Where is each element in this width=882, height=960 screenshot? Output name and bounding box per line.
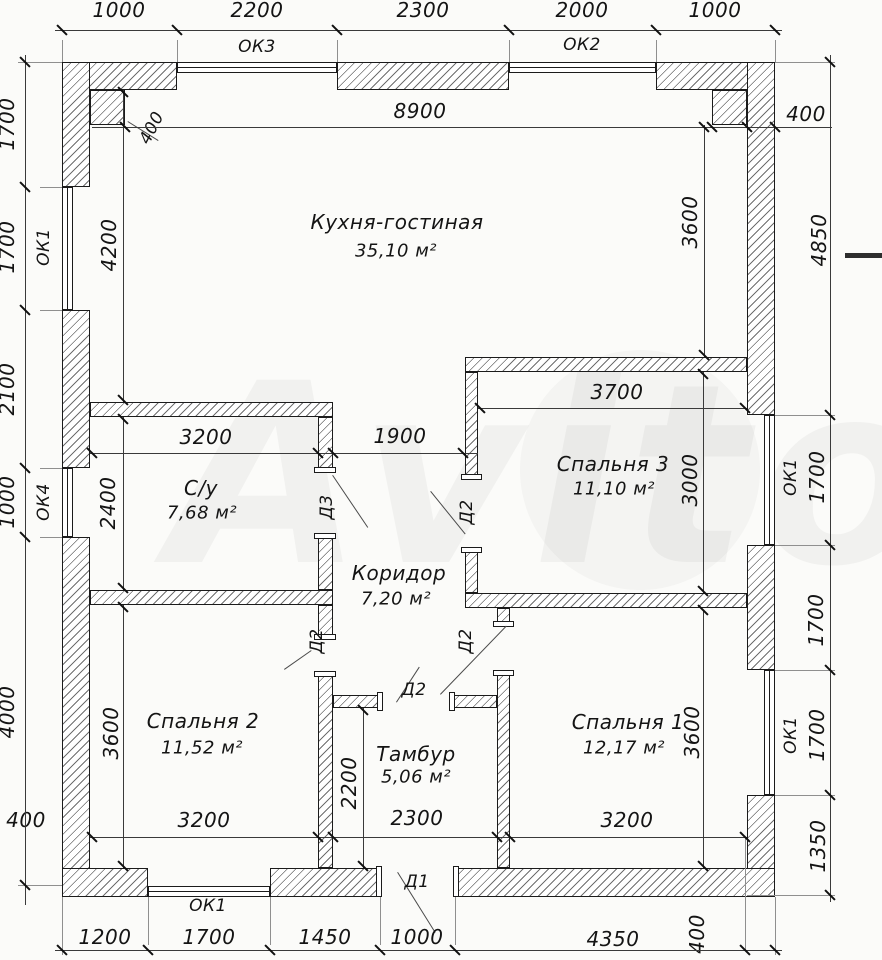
watermark-artifact [845, 253, 882, 258]
dim-label-right-1: 400 [786, 102, 826, 126]
extension-line [40, 187, 62, 188]
extension-line [177, 40, 178, 62]
extension-line [775, 795, 835, 796]
extension-line [270, 897, 271, 945]
door-jamb [461, 547, 482, 553]
room-name-bedroom1: Спальня 1 [572, 710, 685, 734]
window-label-ok1-left: ОК1 [34, 228, 54, 266]
dim-line [123, 417, 124, 590]
window-label-ok1-bottom: ОК1 [189, 896, 227, 916]
dim-label-pier-left: 400 [135, 108, 168, 147]
dim-label-bottom-4: 1000 [391, 925, 444, 949]
dim-label-bedroom1-depth: 3600 [680, 706, 704, 759]
door-label-d2-bedroom1: Д2 [456, 628, 476, 653]
room-name-vestibule: Тамбур [376, 742, 455, 766]
extension-line [775, 415, 835, 416]
window-label-ok4: ОК4 [34, 483, 54, 521]
dim-line [55, 950, 782, 951]
extension-line [775, 40, 776, 62]
dim-label-bedroom3-width: 3700 [591, 380, 644, 404]
dim-label-vestibule-width: 2300 [391, 806, 444, 830]
wall-bottom-1 [62, 868, 148, 897]
dim-label-bathroom-depth: 2400 [96, 477, 120, 530]
dim-label-kitchen-left-depth: 4200 [97, 219, 121, 272]
dim-label-bedroom2-depth: 3600 [99, 707, 123, 760]
dim-line [363, 708, 364, 868]
door-jamb [377, 692, 383, 711]
door-jamb [493, 670, 514, 676]
extension-line [775, 62, 835, 63]
dim-line [703, 372, 704, 593]
dim-line [123, 90, 124, 402]
dim-line [830, 55, 831, 902]
dim-label-right-4: 1700 [804, 594, 828, 647]
dim-label-bottom-3: 1450 [299, 925, 352, 949]
wall-left-1 [62, 62, 90, 187]
extension-line [455, 897, 456, 945]
dim-label-top-1: 1000 [93, 0, 146, 22]
floor-plan: Avito [0, 0, 882, 960]
room-area-bedroom1: 12,17 м² [583, 738, 665, 759]
wall-left-3 [62, 537, 90, 897]
dim-label-bathroom-width: 3200 [180, 425, 233, 449]
door-label-d2-bedroom3: Д2 [457, 499, 477, 524]
dim-label-right-6: 1350 [806, 820, 830, 873]
window-ok1-right-2 [764, 670, 775, 795]
dim-line [90, 837, 747, 838]
window-ok3 [177, 62, 337, 73]
extension-line [40, 310, 62, 311]
dim-label-left-3: 2100 [0, 363, 19, 416]
extension-line [62, 40, 63, 62]
dim-label-bottom-1: 1200 [79, 925, 132, 949]
door-jamb [314, 467, 336, 473]
partition-bathroom-right-b [318, 535, 333, 590]
dim-label-bedroom2-width: 3200 [178, 808, 231, 832]
window-label-ok1-right-2: ОК1 [781, 716, 801, 754]
partition-bathroom-right-a [318, 417, 333, 473]
wall-bottom-3 [455, 868, 775, 897]
window-ok1-right-1 [764, 415, 775, 545]
window-label-ok1-right-1: ОК1 [781, 458, 801, 496]
door-jamb [493, 621, 514, 627]
room-name-bedroom2: Спальня 2 [147, 709, 260, 733]
dim-line [55, 30, 782, 31]
dim-label-bedroom3-depth: 3000 [678, 454, 702, 507]
window-ok1-left [62, 187, 73, 310]
door-jamb [461, 474, 482, 480]
dim-label-left-6: 400 [6, 808, 46, 832]
extension-line [40, 468, 62, 469]
window-ok4 [62, 468, 73, 537]
room-area-corridor: 7,20 м² [361, 589, 431, 610]
dim-line [90, 453, 478, 454]
door-jamb [314, 671, 336, 677]
dim-label-vestibule-depth: 2200 [337, 757, 361, 810]
dim-line [703, 610, 704, 868]
dim-line [25, 55, 26, 905]
door-jamb [453, 866, 459, 897]
room-name-kitchen: Кухня-гостиная [311, 210, 484, 234]
leader-d3 [332, 475, 368, 528]
door-label-d3: Д3 [317, 494, 337, 519]
door-jamb [314, 533, 336, 539]
dim-label-top-5: 1000 [689, 0, 742, 22]
window-label-ok3: ОК3 [238, 37, 276, 57]
partition-bedroom3-left-a [465, 372, 478, 480]
extension-line [337, 40, 338, 62]
dim-label-right-3: 1700 [805, 451, 829, 504]
partition-vestibule-top-b [450, 695, 497, 708]
door-jamb [376, 866, 382, 897]
room-area-bedroom3: 11,10 м² [573, 479, 655, 500]
room-name-bathroom: С/у [184, 476, 218, 500]
extension-line [656, 40, 657, 62]
door-label-d1: Д1 [404, 872, 429, 892]
corner-pier-right [712, 90, 747, 125]
partition-bedroom3-top [465, 357, 747, 372]
room-area-vestibule: 5,06 м² [381, 767, 451, 788]
dim-label-kitchen-right-depth: 3600 [678, 196, 702, 249]
dim-label-left-1: 1700 [0, 98, 19, 151]
dim-line [478, 408, 747, 409]
partition-bedroom3-bottom [465, 593, 747, 608]
extension-line [745, 838, 746, 950]
dim-label-right-2: 4850 [807, 214, 831, 267]
room-area-bathroom: 7,68 м² [167, 503, 237, 524]
wall-right-1 [747, 62, 775, 415]
dim-label-kitchen-width: 8900 [394, 99, 447, 123]
corner-pier-left [90, 90, 125, 125]
wall-right-2 [747, 545, 775, 670]
dim-label-bedroom1-width: 3200 [601, 808, 654, 832]
dim-line [704, 125, 705, 357]
dim-label-corridor-opening: 1900 [374, 424, 427, 448]
dim-line [92, 127, 832, 128]
wall-left-2 [62, 310, 90, 468]
window-ok2 [509, 62, 656, 73]
dim-label-top-4: 2000 [556, 0, 609, 22]
partition-bedroom3-left-b [465, 548, 478, 593]
extension-line [509, 40, 510, 62]
dim-label-left-2: 1700 [0, 221, 19, 274]
wall-top-2 [337, 62, 509, 90]
extension-line [148, 897, 149, 945]
extension-line [380, 897, 381, 945]
door-jamb [449, 692, 455, 711]
dim-label-left-4: 1000 [0, 476, 19, 529]
extension-line [775, 670, 835, 671]
wall-bottom-2 [270, 868, 380, 897]
extension-line [40, 537, 62, 538]
dim-label-right-5: 1700 [805, 709, 829, 762]
extension-line [62, 897, 63, 955]
dim-label-top-2: 2200 [231, 0, 284, 22]
door-label-d2-vestibule: Д2 [401, 680, 426, 700]
door-label-d2-bedroom2: Д2 [307, 628, 327, 653]
extension-line [775, 545, 835, 546]
window-label-ok2: ОК2 [563, 35, 601, 55]
extension-line [747, 895, 835, 896]
dim-label-left-5: 4000 [0, 686, 19, 739]
dim-label-bottom-6: 400 [685, 914, 709, 954]
watermark: Avito [170, 330, 882, 621]
dim-label-bottom-2: 1700 [183, 925, 236, 949]
extension-line [775, 897, 776, 955]
room-name-bedroom3: Спальня 3 [557, 452, 670, 476]
dim-line [123, 605, 124, 868]
dim-label-top-3: 2300 [397, 0, 450, 22]
room-name-corridor: Коридор [352, 561, 446, 585]
dim-label-bottom-5: 4350 [587, 927, 640, 951]
room-area-bedroom2: 11,52 м² [161, 738, 243, 759]
room-area-kitchen: 35,10 м² [355, 241, 437, 262]
